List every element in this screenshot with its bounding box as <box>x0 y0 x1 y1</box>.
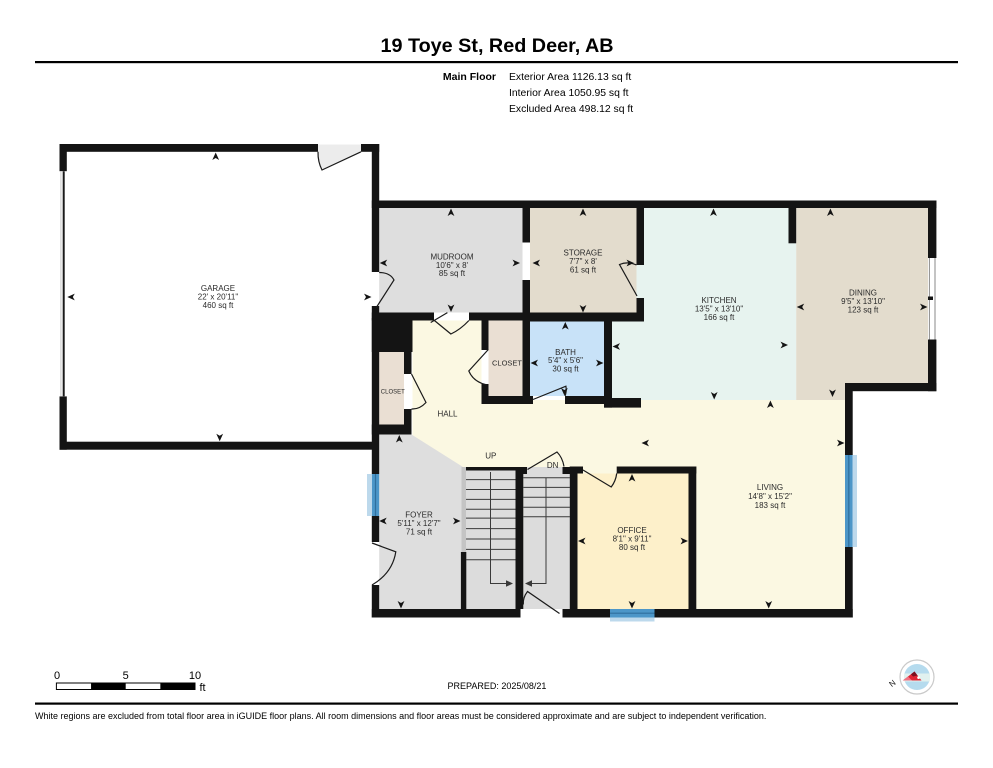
svg-text:Main Floor: Main Floor <box>443 71 496 83</box>
svg-text:ft: ft <box>200 682 206 694</box>
svg-text:123 sq ft: 123 sq ft <box>848 306 879 315</box>
svg-text:71 sq ft: 71 sq ft <box>406 528 433 537</box>
svg-text:LIVING: LIVING <box>757 483 783 492</box>
svg-text:0: 0 <box>54 670 60 682</box>
svg-text:DN: DN <box>547 461 559 470</box>
svg-text:460 sq ft: 460 sq ft <box>203 301 234 310</box>
svg-text:White regions are excluded fro: White regions are excluded from total fl… <box>35 711 766 721</box>
svg-text:UP: UP <box>485 452 496 461</box>
svg-text:61 sq ft: 61 sq ft <box>570 266 597 275</box>
svg-text:Interior Area 1050.95 sq ft: Interior Area 1050.95 sq ft <box>509 88 629 99</box>
svg-text:Exterior Area 1126.13 sq ft: Exterior Area 1126.13 sq ft <box>509 72 631 83</box>
svg-text:PREPARED: 2025/08/21: PREPARED: 2025/08/21 <box>448 681 547 691</box>
svg-text:85 sq ft: 85 sq ft <box>439 269 466 278</box>
svg-text:19 Toye St, Red Deer, AB: 19 Toye St, Red Deer, AB <box>380 35 613 57</box>
svg-text:HALL: HALL <box>437 410 458 419</box>
svg-text:CLOSET: CLOSET <box>381 390 405 396</box>
svg-text:5: 5 <box>123 670 129 682</box>
svg-text:Excluded Area 498.12 sq ft: Excluded Area 498.12 sq ft <box>509 104 633 115</box>
svg-text:10: 10 <box>189 670 201 682</box>
svg-text:183 sq ft: 183 sq ft <box>755 501 786 510</box>
svg-text:166 sq ft: 166 sq ft <box>704 313 735 322</box>
svg-text:80 sq ft: 80 sq ft <box>619 543 646 552</box>
svg-text:30 sq ft: 30 sq ft <box>552 365 579 374</box>
svg-text:14'8" x 15'2": 14'8" x 15'2" <box>748 492 792 501</box>
svg-text:CLOSET: CLOSET <box>492 359 522 368</box>
